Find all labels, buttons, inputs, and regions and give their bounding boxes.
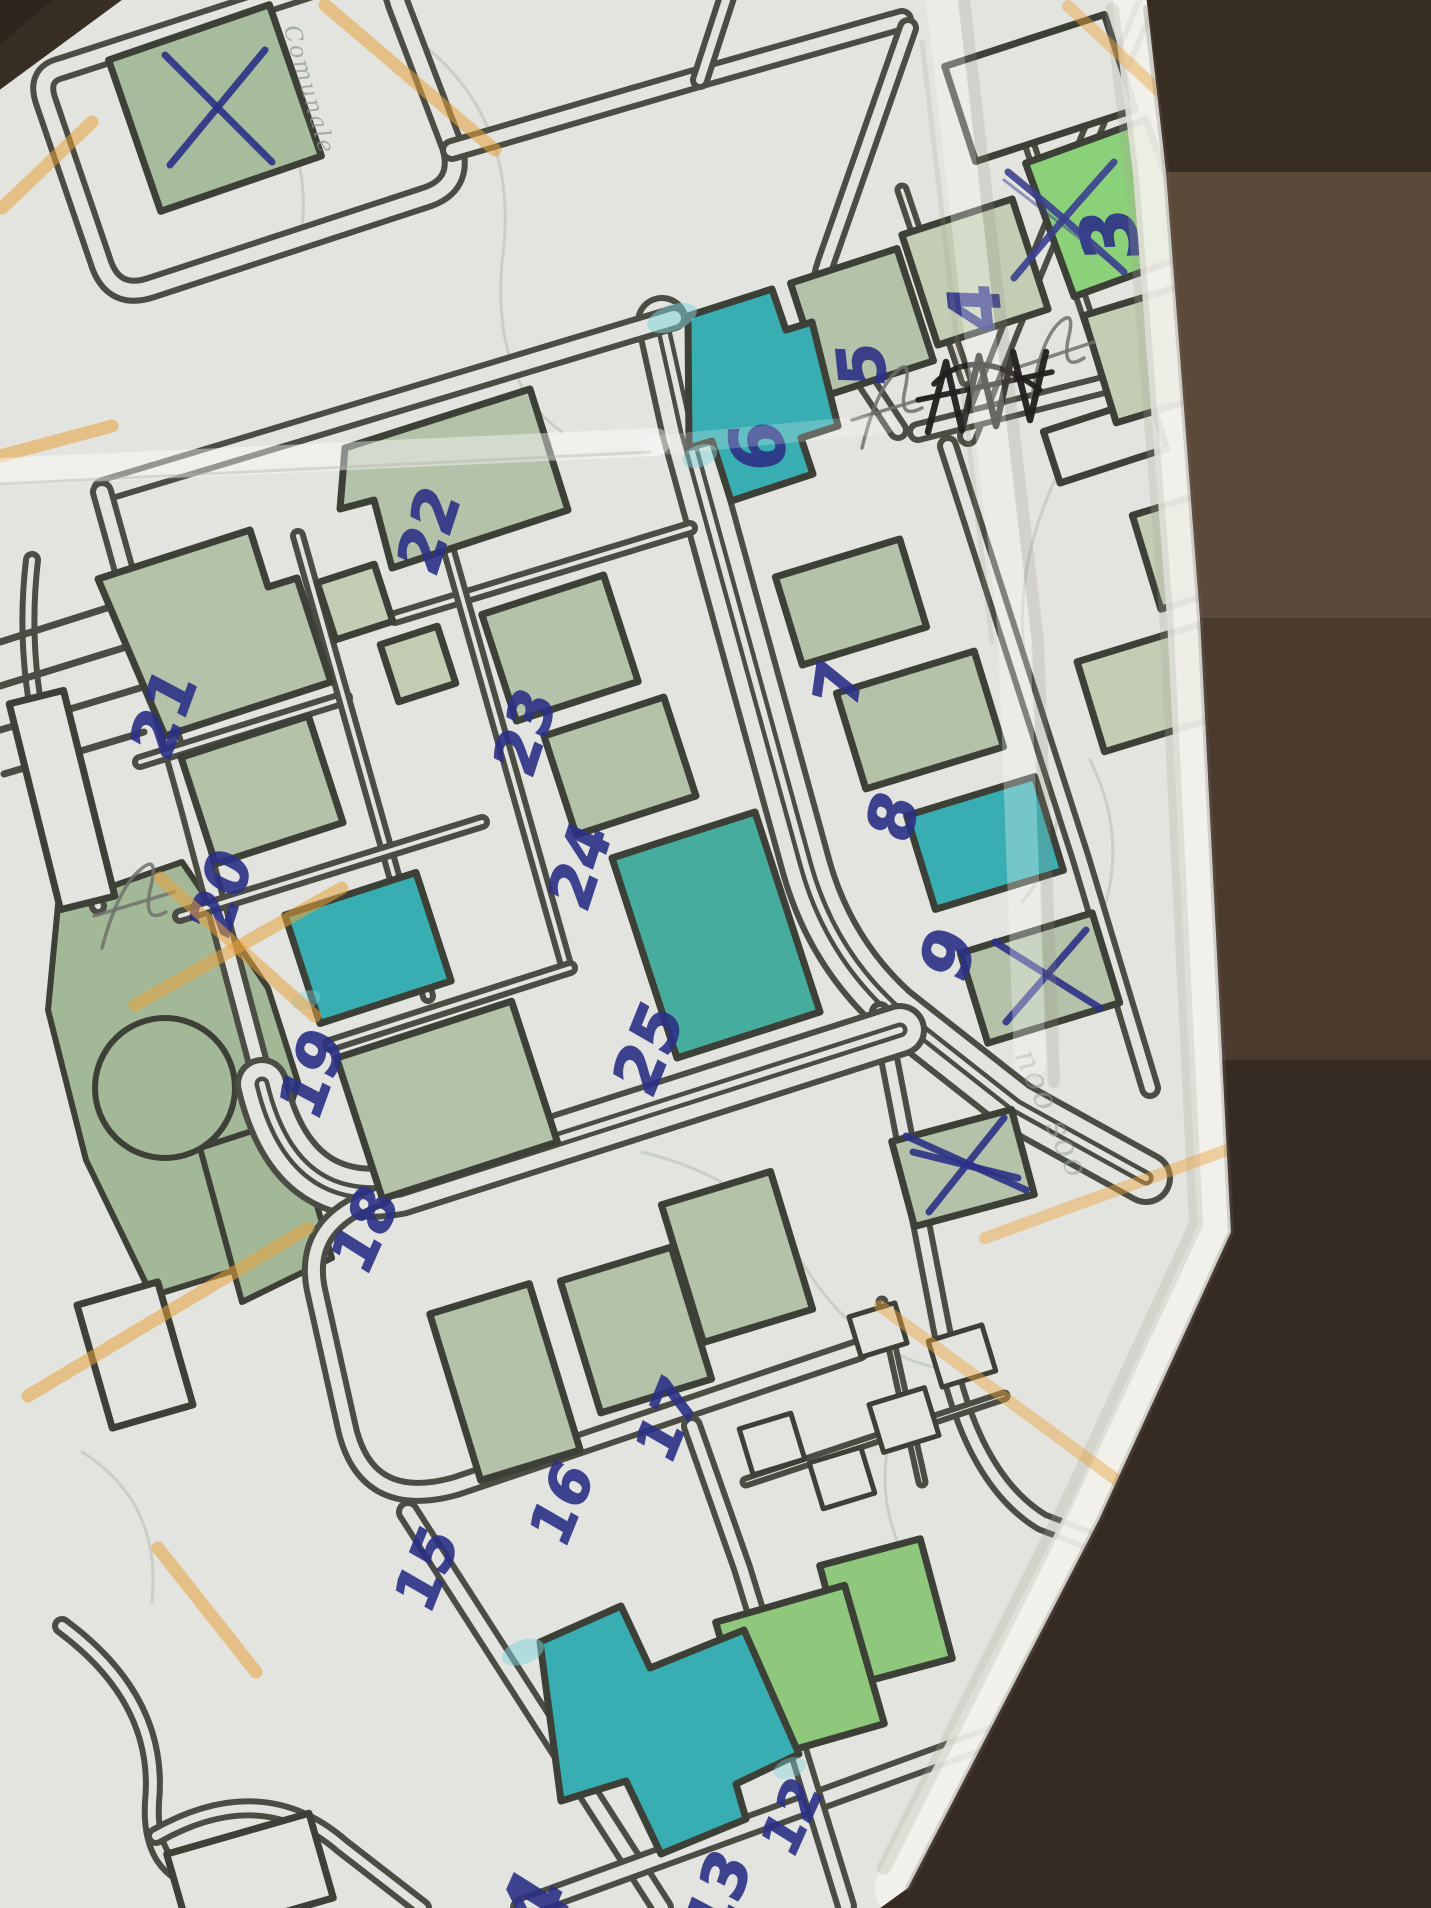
building-label-5: 5: [823, 341, 903, 388]
photo-of-paper-map: 34567891213141516171819202122232425Comun…: [0, 0, 1431, 1908]
building-diamond-2: [380, 626, 456, 702]
park-roundabout: [95, 1018, 235, 1158]
building-diamond-1: [317, 564, 393, 640]
map-photo-svg: 34567891213141516171819202122232425Comun…: [0, 0, 1431, 1908]
table-background: [1166, 172, 1431, 618]
table-background: [1146, 0, 1431, 172]
